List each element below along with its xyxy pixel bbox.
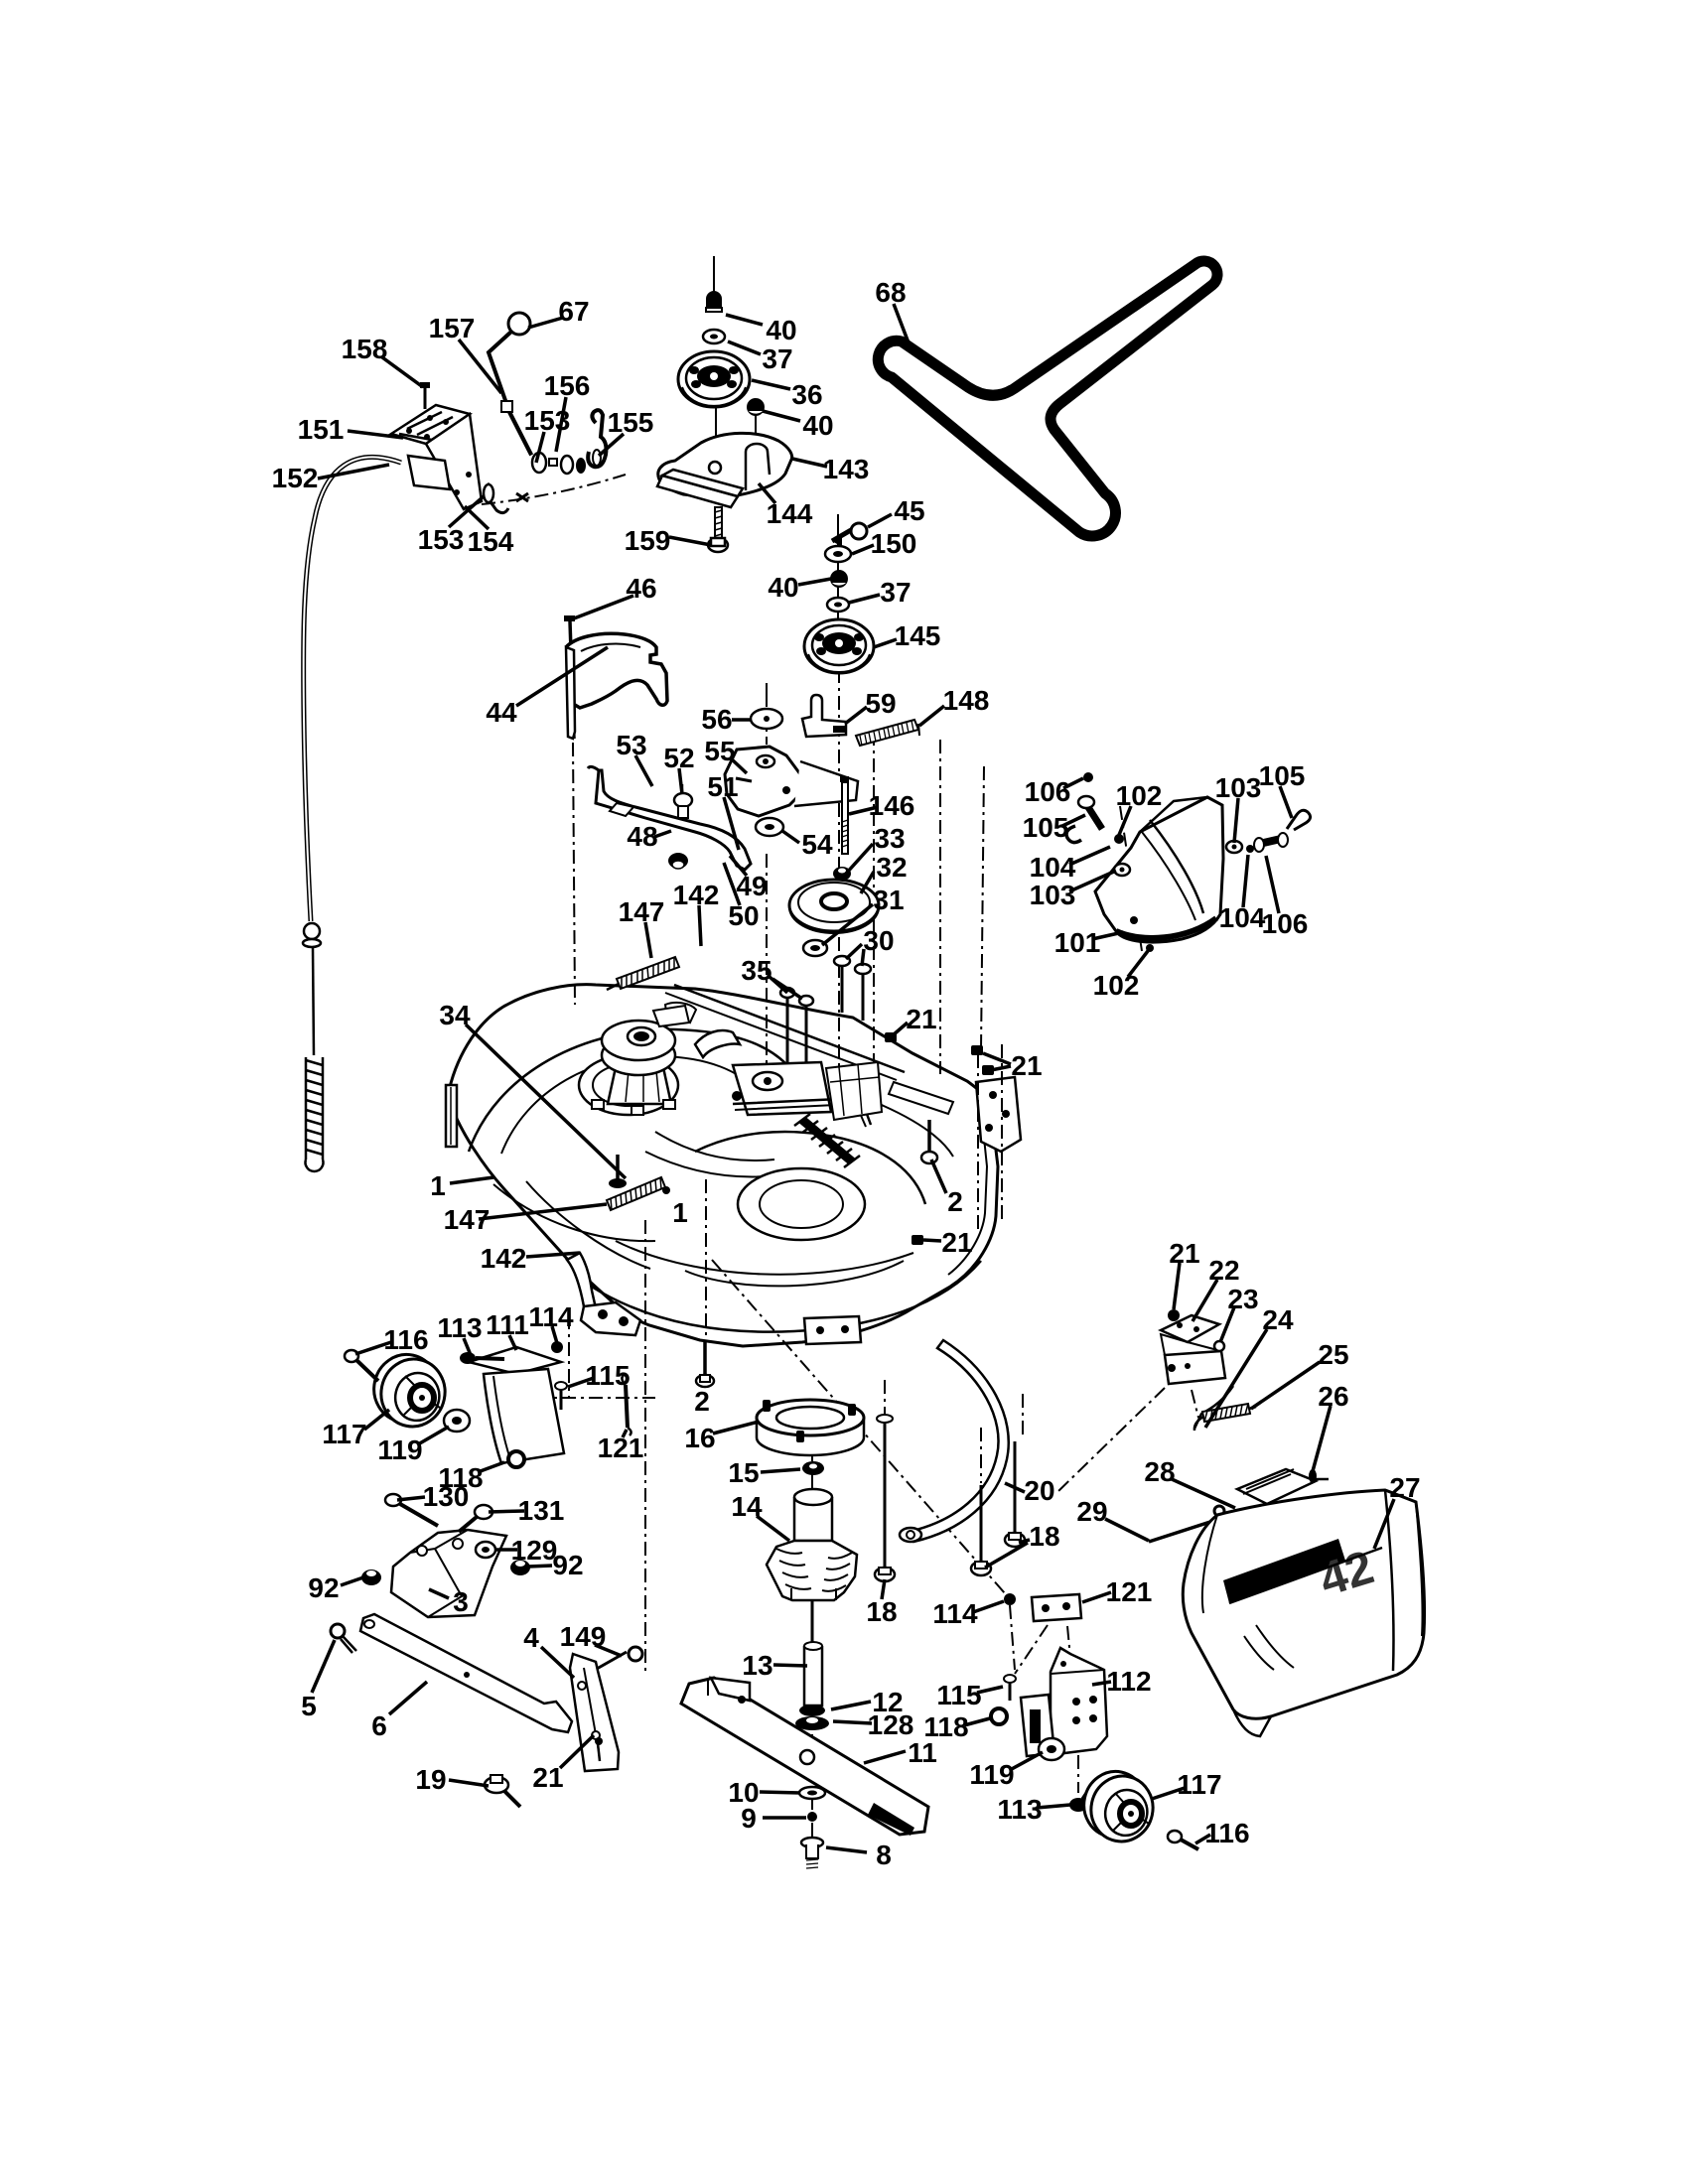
svg-text:48: 48 bbox=[627, 821, 657, 852]
svg-text:18: 18 bbox=[866, 1596, 897, 1627]
svg-text:105: 105 bbox=[1023, 812, 1069, 843]
svg-text:34: 34 bbox=[439, 1000, 471, 1030]
svg-text:21: 21 bbox=[1011, 1050, 1042, 1081]
svg-text:118: 118 bbox=[923, 1711, 968, 1742]
svg-text:104: 104 bbox=[1030, 852, 1076, 883]
svg-text:144: 144 bbox=[767, 498, 813, 529]
svg-text:21: 21 bbox=[532, 1762, 563, 1793]
svg-text:153: 153 bbox=[524, 405, 571, 436]
svg-text:24: 24 bbox=[1262, 1304, 1294, 1335]
svg-text:19: 19 bbox=[415, 1764, 446, 1795]
svg-text:23: 23 bbox=[1227, 1284, 1258, 1314]
svg-text:103: 103 bbox=[1215, 772, 1262, 803]
svg-text:142: 142 bbox=[481, 1243, 527, 1274]
svg-text:147: 147 bbox=[619, 896, 665, 927]
svg-text:111: 111 bbox=[486, 1309, 529, 1340]
svg-text:149: 149 bbox=[560, 1621, 607, 1652]
svg-text:105: 105 bbox=[1259, 760, 1306, 791]
svg-text:27: 27 bbox=[1389, 1472, 1420, 1503]
svg-text:40: 40 bbox=[768, 572, 798, 603]
svg-text:114: 114 bbox=[528, 1301, 574, 1332]
svg-text:115: 115 bbox=[936, 1680, 981, 1710]
svg-text:129: 129 bbox=[511, 1535, 558, 1566]
svg-text:116: 116 bbox=[1204, 1818, 1249, 1848]
svg-text:147: 147 bbox=[444, 1204, 491, 1235]
svg-text:68: 68 bbox=[875, 277, 906, 308]
svg-text:13: 13 bbox=[742, 1650, 772, 1681]
svg-text:102: 102 bbox=[1093, 970, 1140, 1001]
svg-text:40: 40 bbox=[802, 410, 833, 441]
svg-text:145: 145 bbox=[895, 620, 941, 651]
svg-text:104: 104 bbox=[1219, 902, 1266, 933]
svg-text:29: 29 bbox=[1076, 1496, 1107, 1527]
svg-text:37: 37 bbox=[762, 343, 792, 374]
svg-text:106: 106 bbox=[1262, 908, 1309, 939]
svg-text:146: 146 bbox=[869, 790, 915, 821]
svg-text:31: 31 bbox=[873, 885, 904, 915]
svg-text:45: 45 bbox=[894, 495, 924, 526]
svg-text:26: 26 bbox=[1318, 1381, 1348, 1412]
svg-text:157: 157 bbox=[429, 313, 476, 343]
svg-text:37: 37 bbox=[880, 577, 911, 608]
svg-text:56: 56 bbox=[701, 704, 732, 735]
svg-text:117: 117 bbox=[322, 1419, 366, 1449]
svg-text:92: 92 bbox=[552, 1550, 583, 1580]
svg-text:67: 67 bbox=[558, 296, 589, 327]
svg-text:112: 112 bbox=[1106, 1666, 1151, 1697]
svg-text:53: 53 bbox=[616, 730, 646, 760]
svg-text:2: 2 bbox=[947, 1186, 963, 1217]
svg-text:101: 101 bbox=[1054, 927, 1101, 958]
svg-text:40: 40 bbox=[766, 315, 796, 345]
svg-text:1: 1 bbox=[430, 1170, 446, 1201]
svg-text:106: 106 bbox=[1025, 776, 1071, 807]
svg-text:51: 51 bbox=[707, 771, 738, 802]
svg-text:103: 103 bbox=[1030, 880, 1076, 910]
svg-text:92: 92 bbox=[308, 1572, 339, 1603]
svg-text:153: 153 bbox=[418, 524, 465, 555]
svg-text:121: 121 bbox=[598, 1433, 644, 1463]
svg-text:150: 150 bbox=[871, 528, 917, 559]
svg-text:55: 55 bbox=[704, 736, 735, 766]
svg-text:154: 154 bbox=[468, 526, 514, 557]
svg-text:156: 156 bbox=[544, 370, 591, 401]
svg-text:52: 52 bbox=[663, 743, 694, 773]
svg-text:114: 114 bbox=[932, 1598, 978, 1629]
svg-text:130: 130 bbox=[423, 1481, 470, 1512]
svg-text:2: 2 bbox=[694, 1386, 710, 1417]
svg-text:152: 152 bbox=[272, 463, 319, 493]
svg-text:128: 128 bbox=[868, 1709, 914, 1740]
svg-text:8: 8 bbox=[876, 1840, 892, 1870]
svg-text:9: 9 bbox=[741, 1803, 757, 1834]
svg-text:115: 115 bbox=[585, 1360, 630, 1391]
svg-text:44: 44 bbox=[486, 697, 517, 728]
svg-text:22: 22 bbox=[1208, 1255, 1239, 1286]
svg-text:25: 25 bbox=[1318, 1339, 1348, 1370]
svg-text:1: 1 bbox=[672, 1197, 688, 1228]
svg-text:50: 50 bbox=[728, 900, 759, 931]
svg-text:117: 117 bbox=[1177, 1769, 1221, 1800]
svg-text:143: 143 bbox=[823, 454, 870, 484]
svg-text:28: 28 bbox=[1144, 1456, 1175, 1487]
svg-text:131: 131 bbox=[518, 1495, 565, 1526]
svg-text:21: 21 bbox=[906, 1004, 936, 1034]
svg-text:21: 21 bbox=[941, 1227, 972, 1258]
svg-text:113: 113 bbox=[997, 1794, 1042, 1825]
svg-text:119: 119 bbox=[377, 1434, 422, 1465]
svg-text:113: 113 bbox=[437, 1312, 482, 1343]
svg-text:46: 46 bbox=[626, 573, 656, 604]
svg-text:3: 3 bbox=[453, 1586, 469, 1617]
svg-text:59: 59 bbox=[865, 688, 896, 719]
svg-text:49: 49 bbox=[736, 871, 767, 901]
svg-text:102: 102 bbox=[1116, 780, 1163, 811]
svg-text:155: 155 bbox=[608, 407, 654, 438]
svg-text:148: 148 bbox=[943, 685, 990, 716]
svg-text:54: 54 bbox=[801, 829, 833, 860]
svg-text:5: 5 bbox=[301, 1691, 317, 1721]
svg-text:14: 14 bbox=[731, 1491, 763, 1522]
svg-text:142: 142 bbox=[673, 880, 720, 910]
svg-text:158: 158 bbox=[342, 334, 388, 364]
svg-text:15: 15 bbox=[728, 1457, 759, 1488]
svg-text:6: 6 bbox=[371, 1710, 387, 1741]
svg-text:121: 121 bbox=[1106, 1576, 1153, 1607]
svg-text:119: 119 bbox=[969, 1759, 1014, 1790]
svg-text:35: 35 bbox=[741, 955, 772, 986]
svg-text:18: 18 bbox=[1029, 1521, 1059, 1552]
svg-text:20: 20 bbox=[1024, 1475, 1054, 1506]
svg-text:36: 36 bbox=[791, 379, 822, 410]
svg-text:151: 151 bbox=[298, 414, 345, 445]
svg-text:159: 159 bbox=[625, 525, 671, 556]
svg-text:33: 33 bbox=[874, 823, 905, 854]
svg-text:21: 21 bbox=[1169, 1238, 1199, 1269]
svg-text:16: 16 bbox=[684, 1423, 715, 1453]
svg-text:116: 116 bbox=[383, 1324, 428, 1355]
svg-text:30: 30 bbox=[863, 925, 894, 956]
svg-text:32: 32 bbox=[876, 852, 907, 883]
svg-text:4: 4 bbox=[523, 1622, 539, 1653]
